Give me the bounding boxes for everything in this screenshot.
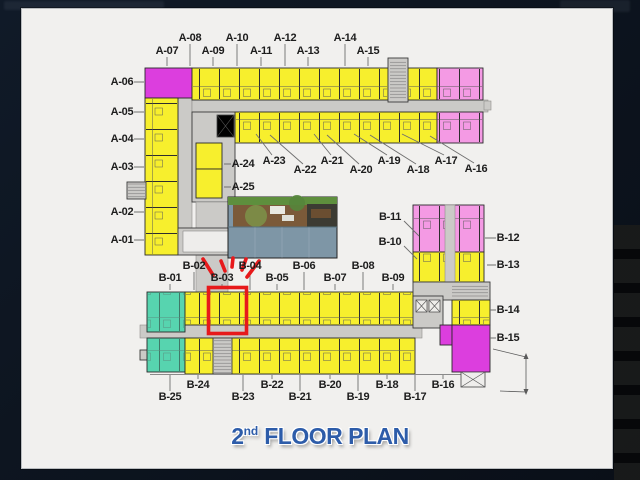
unit-label-b-13: B-13 — [497, 259, 520, 271]
unit-label-a-09: A-09 — [202, 45, 225, 57]
unit-label-a-21: A-21 — [321, 155, 344, 167]
unit-label-b-23: B-23 — [232, 391, 255, 403]
unit-label-a-12: A-12 — [274, 32, 297, 44]
unit-label-b-03: B-03 — [211, 272, 234, 284]
unit-label-a-20: A-20 — [350, 164, 373, 176]
unit-label-a-10: A-10 — [226, 32, 249, 44]
page-title: 2ndFLOOR PLAN — [195, 423, 445, 450]
unit-label-a-11: A-11 — [250, 45, 272, 57]
title-text: FLOOR PLAN — [264, 423, 409, 449]
unit-label-b-19: B-19 — [347, 391, 370, 403]
unit-label-a-03: A-03 — [111, 161, 134, 173]
b-right-wing — [413, 205, 490, 387]
unit-label-a-18: A-18 — [407, 164, 430, 176]
unit-label-b-21: B-21 — [289, 391, 312, 403]
unit-label-b-07: B-07 — [324, 272, 347, 284]
unit-block-a-25 — [196, 169, 222, 198]
unit-label-a-08: A-08 — [179, 32, 202, 44]
unit-label-a-17: A-17 — [435, 155, 458, 167]
unit-label-b-11: B-11 — [379, 211, 401, 223]
unit-label-a-01: A-01 — [111, 234, 134, 246]
floor-plan-graphic — [0, 0, 640, 480]
unit-label-b-22: B-22 — [261, 379, 284, 391]
unit-label-a-25: A-25 — [232, 181, 255, 193]
unit-block-a-06 — [145, 68, 192, 98]
unit-label-a-22: A-22 — [294, 164, 317, 176]
unit-label-b-09: B-09 — [382, 272, 405, 284]
unit-label-b-10: B-10 — [379, 236, 402, 248]
unit-label-a-23: A-23 — [263, 155, 286, 167]
unit-label-a-04: A-04 — [111, 133, 134, 145]
slide-stage: A-06A-05A-04A-03A-02A-01A-07A-08A-09A-10… — [0, 0, 640, 480]
unit-label-b-16: B-16 — [432, 379, 455, 391]
unit-label-a-05: A-05 — [111, 106, 134, 118]
unit-label-b-02: B-02 — [183, 260, 206, 272]
unit-label-b-08: B-08 — [352, 260, 375, 272]
unit-label-a-06: A-06 — [111, 76, 134, 88]
unit-label-b-18: B-18 — [376, 379, 399, 391]
unit-label-a-16: A-16 — [465, 163, 488, 175]
unit-label-b-14: B-14 — [497, 304, 520, 316]
unit-label-b-12: B-12 — [497, 232, 520, 244]
unit-block-b-15 — [452, 325, 490, 372]
courtyard-pool-photo — [228, 195, 337, 258]
unit-label-b-05: B-05 — [266, 272, 289, 284]
unit-label-a-14: A-14 — [334, 32, 357, 44]
unit-label-a-02: A-02 — [111, 206, 134, 218]
unit-label-b-01: B-01 — [159, 272, 182, 284]
unit-label-b-20: B-20 — [319, 379, 342, 391]
unit-label-a-24: A-24 — [232, 158, 255, 170]
unit-label-b-24: B-24 — [187, 379, 210, 391]
unit-label-a-07: A-07 — [156, 45, 179, 57]
unit-label-b-06: B-06 — [293, 260, 316, 272]
unit-label-b-04: B-04 — [239, 260, 262, 272]
unit-label-a-13: A-13 — [297, 45, 320, 57]
dimension-detail — [493, 349, 529, 395]
unit-label-a-19: A-19 — [378, 155, 401, 167]
unit-label-b-17: B-17 — [404, 391, 427, 403]
title-ordinal: nd — [244, 424, 259, 438]
title-number: 2 — [231, 423, 243, 449]
unit-label-b-25: B-25 — [159, 391, 182, 403]
unit-label-a-15: A-15 — [357, 45, 380, 57]
unit-block-a-24 — [196, 143, 222, 169]
unit-label-b-15: B-15 — [497, 332, 520, 344]
